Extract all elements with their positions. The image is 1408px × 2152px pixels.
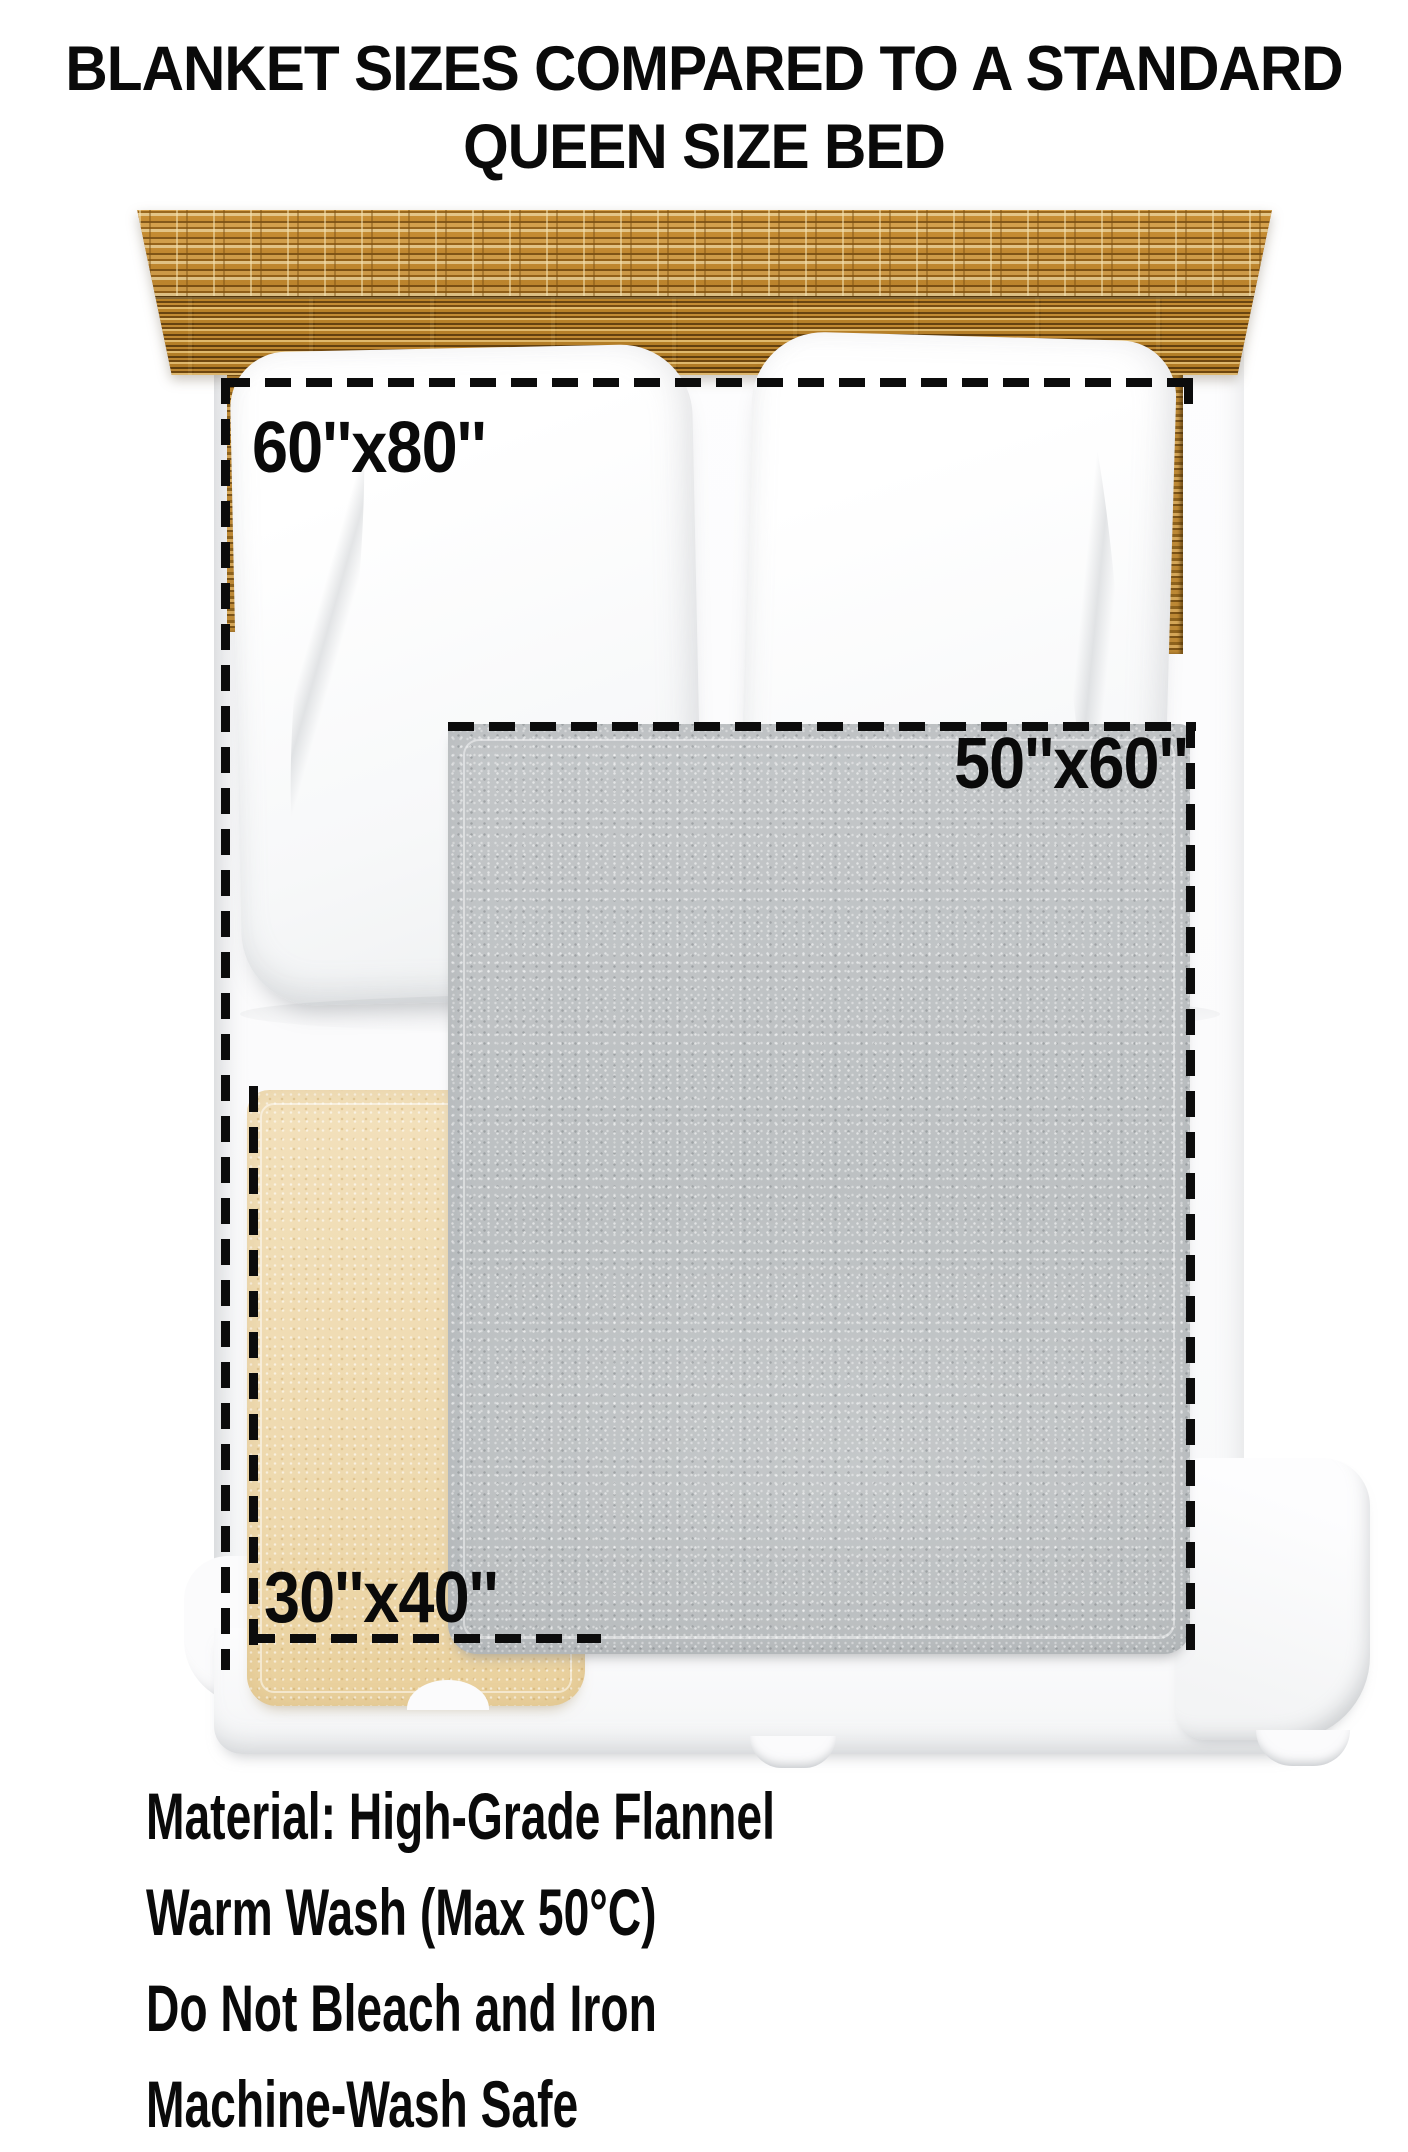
care-line-wash: Warm Wash (Max 50°C) [146, 1864, 775, 1960]
bed-sheet-corner-right [1176, 1458, 1370, 1740]
blanket-50x60-stitch-seam [463, 739, 1175, 1639]
page-title: BLANKET SIZES COMPARED TO A STANDARD QUE… [49, 30, 1358, 186]
care-line-material: Material: High-Grade Flannel [146, 1768, 775, 1864]
page-title-line1: BLANKET SIZES COMPARED TO A STANDARD [49, 30, 1358, 108]
care-line-machine: Machine-Wash Safe [146, 2056, 775, 2152]
size-label-30x40: 30''x40'' [264, 1562, 498, 1634]
bed-foot-left [750, 1736, 836, 1768]
care-line-bleach: Do Not Bleach and Iron [146, 1960, 775, 2056]
headboard-upper-band [128, 210, 1280, 296]
size-label-50x60: 50''x60'' [954, 728, 1188, 800]
outline-50x60-right [1186, 722, 1195, 1654]
size-label-60x80: 60''x80'' [252, 412, 486, 484]
outline-30x40-left [249, 1086, 258, 1646]
outline-60x80-top [224, 378, 1196, 387]
bed-foot-right [1256, 1730, 1350, 1766]
outline-60x80-left [221, 378, 230, 1670]
page-title-line2: QUEEN SIZE BED [49, 108, 1358, 186]
blanket-50x60 [448, 724, 1190, 1654]
blanket-size-infographic: BLANKET SIZES COMPARED TO A STANDARD QUE… [0, 0, 1408, 2112]
outline-60x80-right-corner [1184, 378, 1193, 410]
care-instructions: Material: High-Grade Flannel Warm Wash (… [146, 1768, 775, 2152]
